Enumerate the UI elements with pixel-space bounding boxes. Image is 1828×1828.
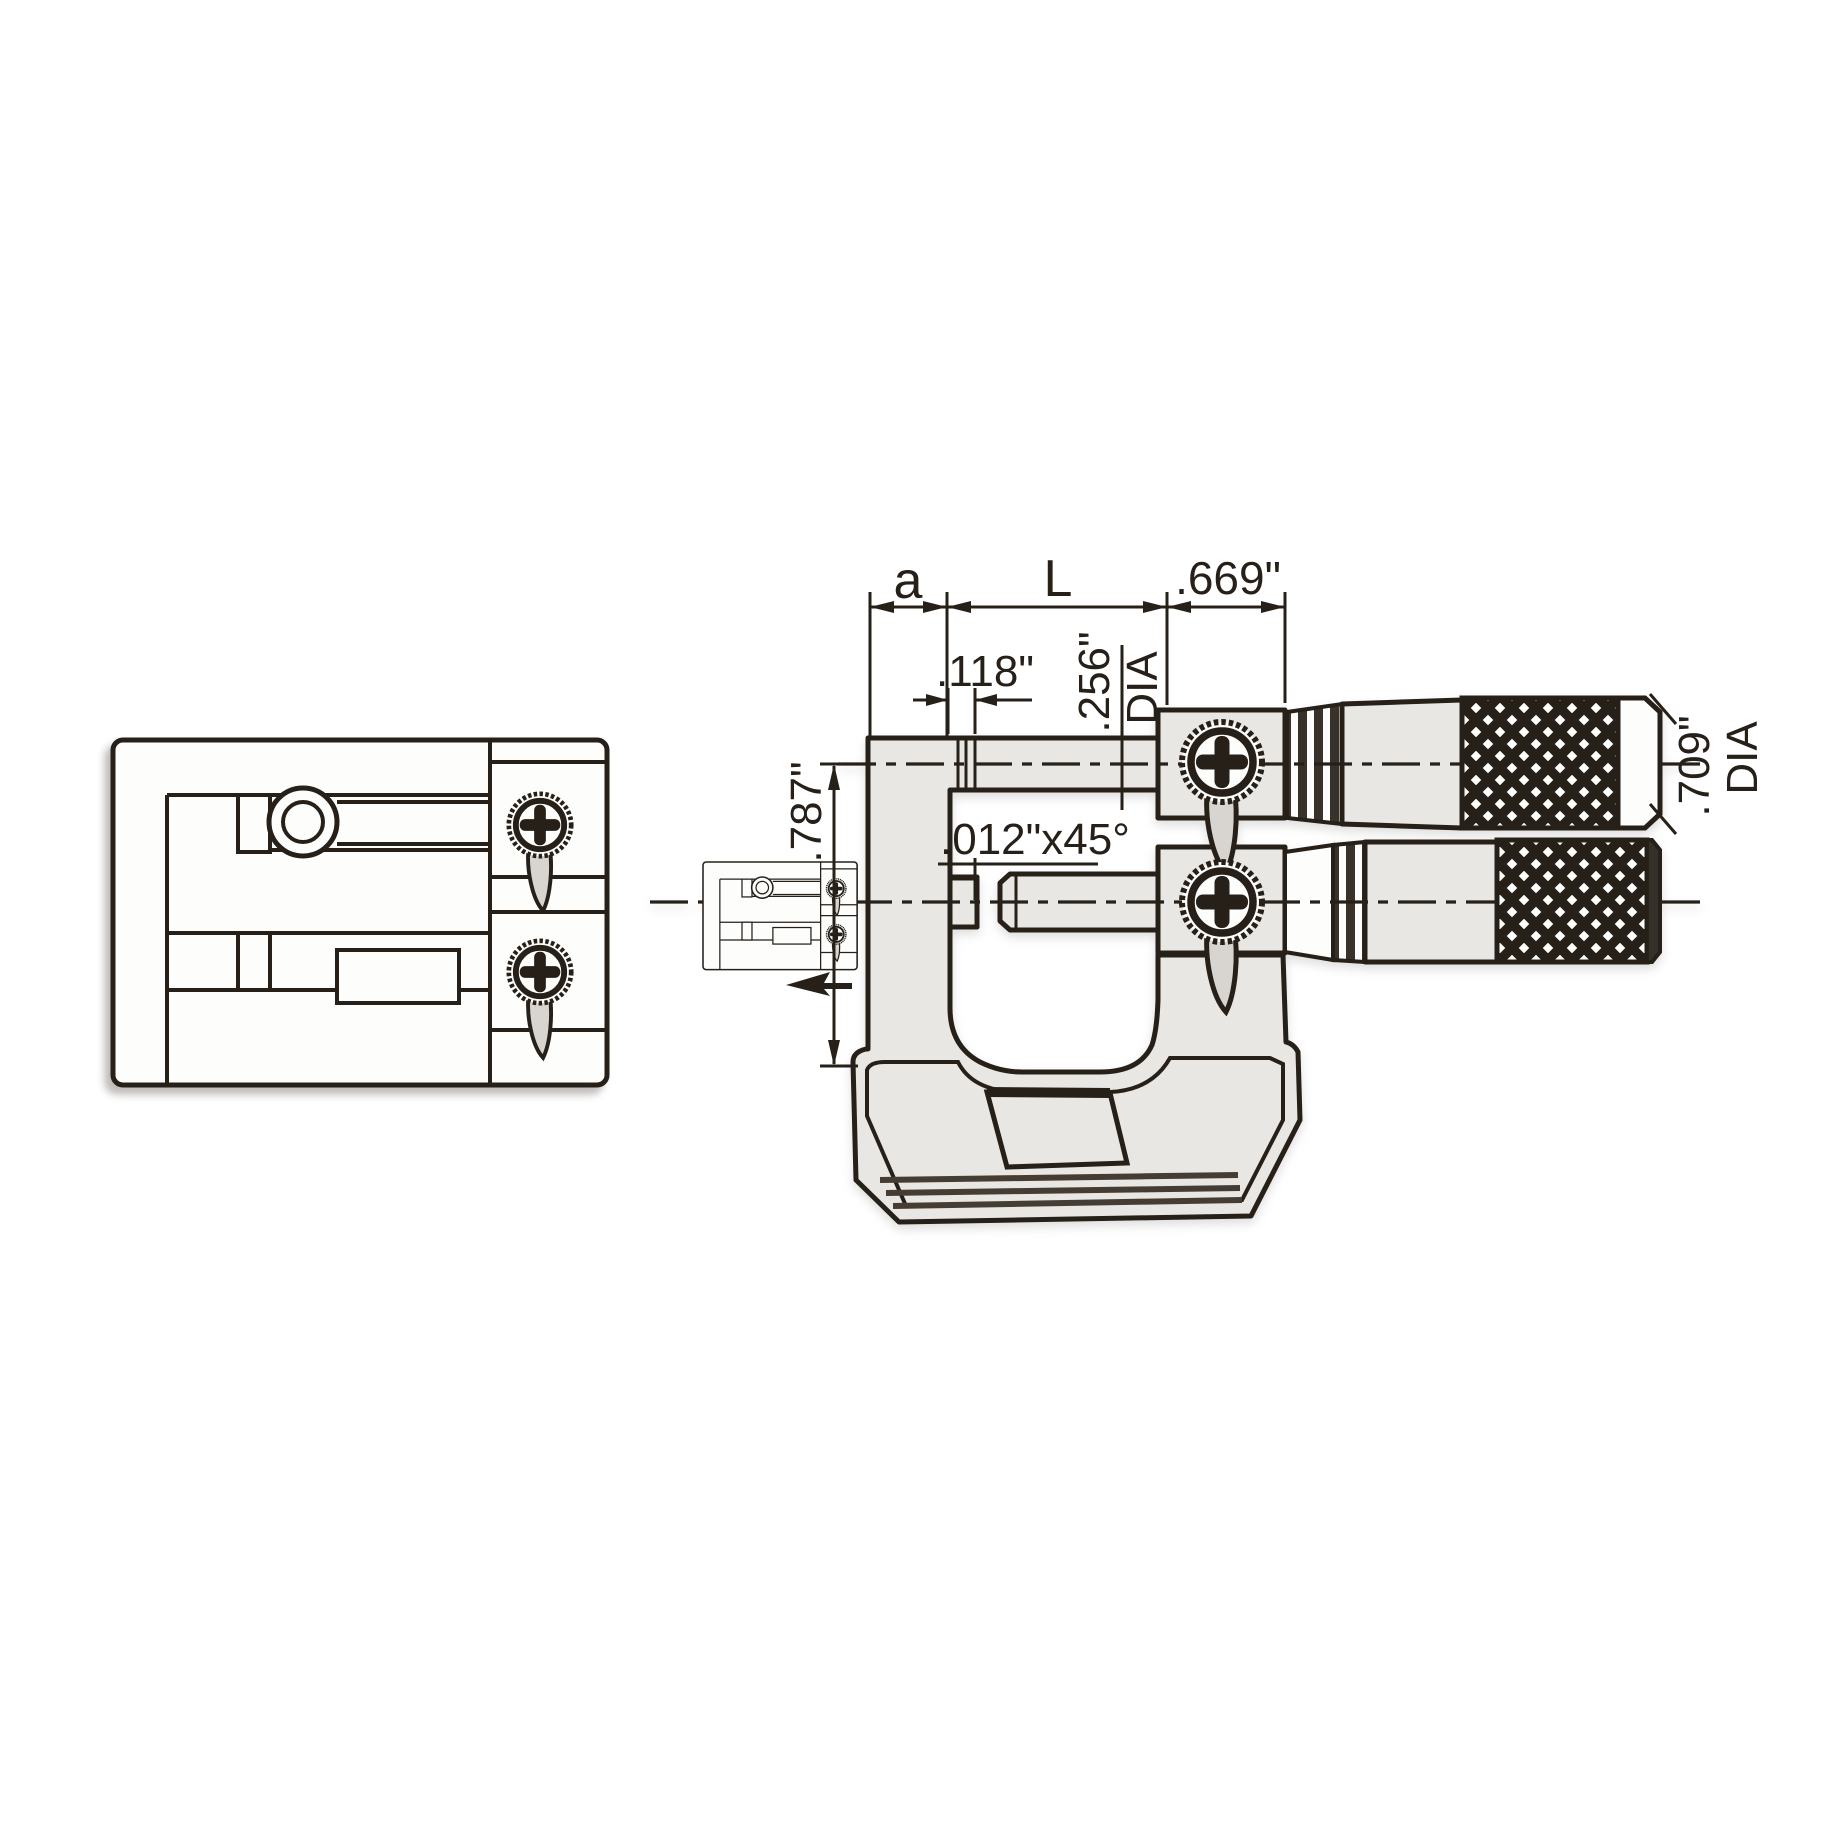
dim-256-dia-label: DIA <box>1118 651 1167 725</box>
lower-lock-screw-icon <box>1182 862 1262 942</box>
drawing-canvas: a L .669" .118" .256" DIA .787" .012"x45… <box>0 0 1828 1828</box>
dim-L-label: L <box>1044 550 1073 608</box>
micrometer-technical-drawing: a L .669" .118" .256" DIA .787" .012"x45… <box>0 0 1828 1828</box>
dim-a-label: a <box>894 552 923 610</box>
top-view-drawing <box>113 740 607 1085</box>
dim-787-label: .787" <box>782 761 831 862</box>
dim-709-label: .709" <box>1670 715 1719 816</box>
dim-709-dia-label: DIA <box>1718 721 1767 795</box>
frame-grip-insert <box>987 1092 1127 1167</box>
upper-thimble-knurl <box>1462 698 1618 828</box>
dim-669-label: .669" <box>1175 552 1281 604</box>
lower-thimble-knurl <box>1497 840 1647 962</box>
dim-118-label: .118" <box>936 647 1034 696</box>
lower-thimble-end <box>1647 840 1660 962</box>
upper-lock-screw-icon <box>1182 722 1262 802</box>
dim-chamfer-label: .012"x45° <box>940 815 1130 864</box>
dim-256-label: .256" <box>1070 631 1119 732</box>
